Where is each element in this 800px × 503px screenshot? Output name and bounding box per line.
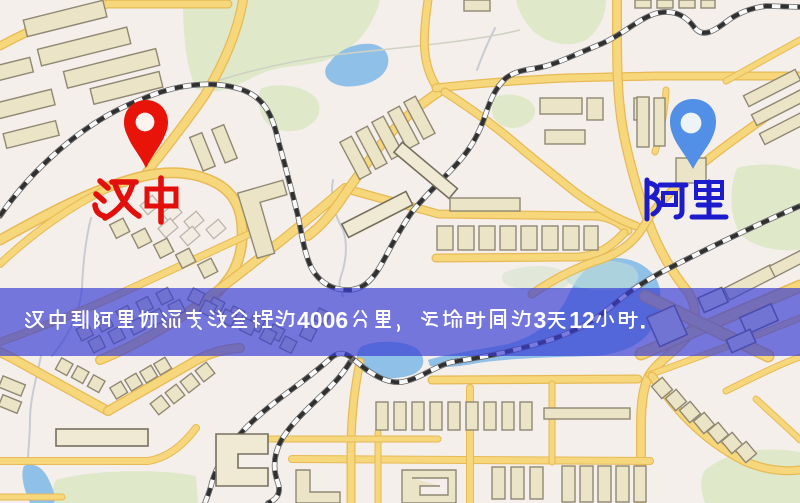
svg-text:4006: 4006: [297, 307, 348, 333]
svg-text:12: 12: [569, 307, 595, 333]
svg-text:3: 3: [534, 307, 547, 333]
